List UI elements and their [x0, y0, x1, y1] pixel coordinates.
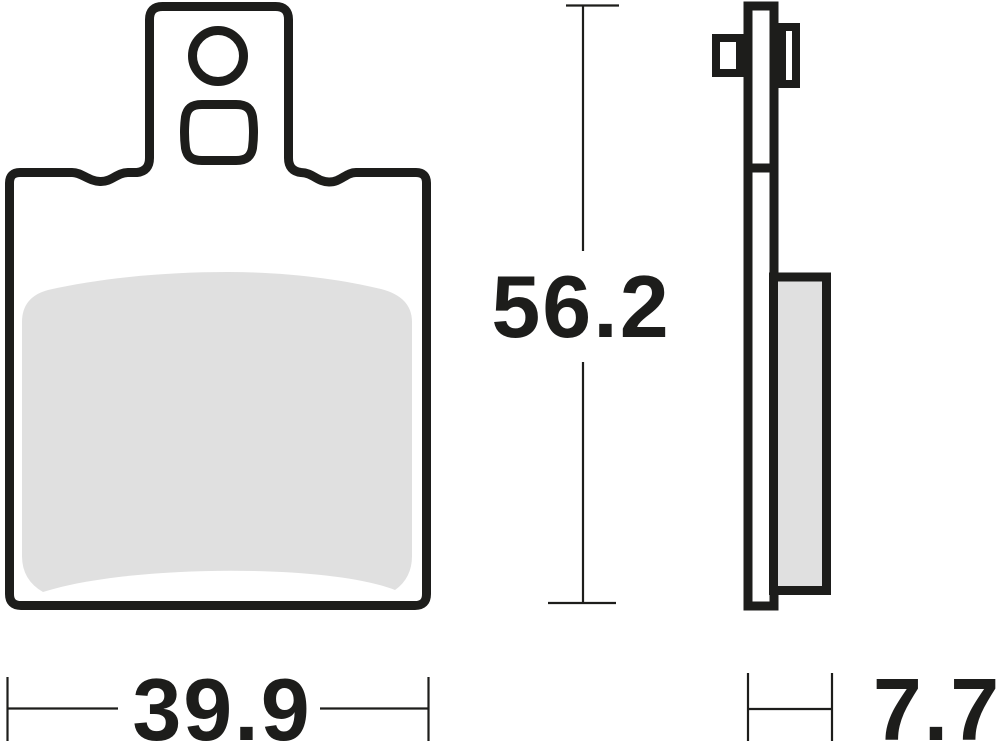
thickness-dimension-label: 7.7: [873, 660, 1000, 743]
height-dimension-label: 56.2: [491, 257, 670, 356]
front-view: [10, 7, 427, 606]
width-dimension-label: 39.9: [132, 660, 311, 743]
height-dimension: 56.2: [491, 6, 670, 604]
side-view: [716, 6, 827, 606]
tab-flange-left: [716, 38, 740, 73]
width-dimension: 39.9: [8, 660, 429, 743]
friction-material-side: [774, 277, 827, 591]
technical-drawing: 56.2 39.9 7.7: [0, 0, 1000, 743]
drawing-canvas: 56.2 39.9 7.7: [0, 0, 1000, 743]
mounting-hole-octagonal: [185, 105, 254, 161]
thickness-dimension: 7.7: [748, 660, 1000, 743]
friction-material-front: [22, 272, 412, 592]
tab-flange-right: [782, 27, 796, 84]
mounting-hole-round: [193, 31, 244, 82]
